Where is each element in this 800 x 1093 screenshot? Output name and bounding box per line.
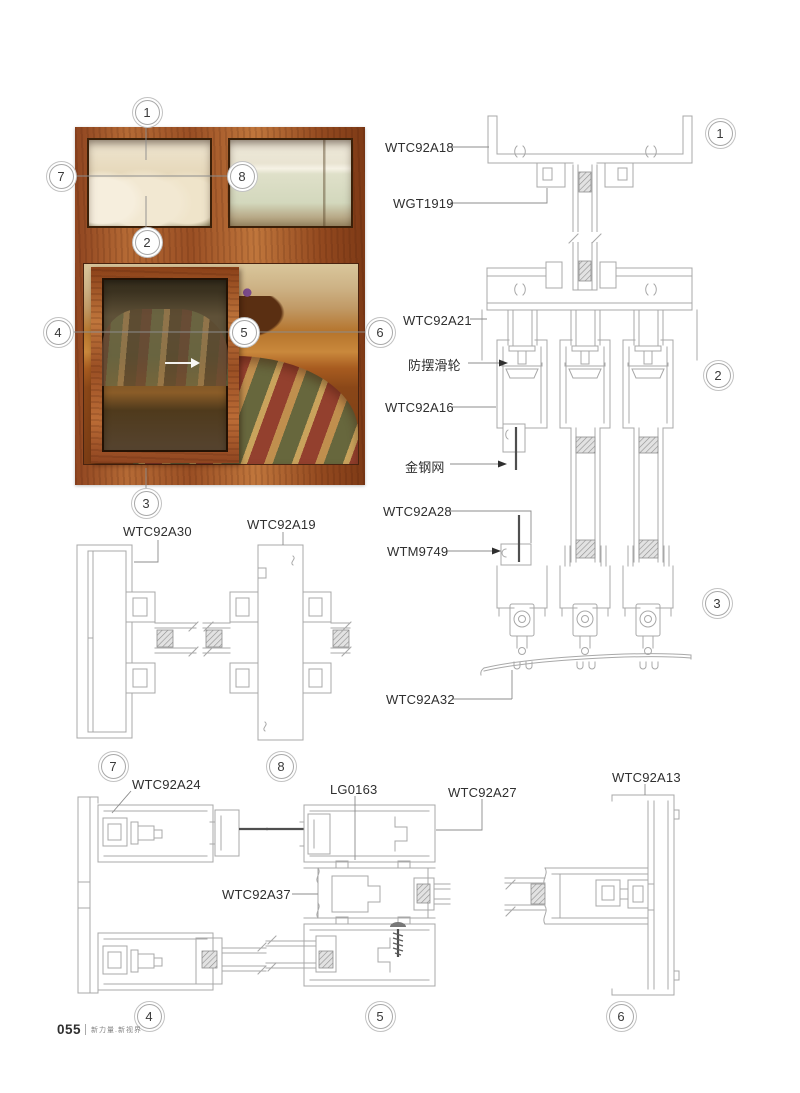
label-wtc92a21: WTC92A21 (403, 313, 472, 328)
callout-7-photo: 7 (49, 164, 74, 189)
photo-callout-lines (70, 124, 368, 491)
section-8-drawing (203, 545, 351, 740)
section-marker-5: 5 (368, 1004, 393, 1029)
section-2-drawing (482, 262, 697, 566)
label-wtc92a32: WTC92A32 (386, 692, 455, 707)
section-marker-2: 2 (706, 363, 731, 388)
label-lg0163: LG0163 (330, 782, 377, 797)
label-wtm9749: WTM9749 (387, 544, 448, 559)
section-6-drawing (505, 795, 679, 995)
callout-8-photo: 8 (230, 164, 255, 189)
footer-divider (85, 1024, 86, 1035)
callout-4-photo: 4 (46, 320, 71, 345)
label-wtc92a16: WTC92A16 (385, 400, 454, 415)
section-marker-7: 7 (101, 754, 126, 779)
callout-1-photo: 1 (135, 100, 160, 125)
page-number: 055 (57, 1022, 81, 1037)
section-marker-8: 8 (269, 754, 294, 779)
section-5-drawing (266, 805, 450, 986)
label-wtc92a28: WTC92A28 (383, 504, 452, 519)
section-marker-3: 3 (705, 591, 730, 616)
page-footer: 055 新力量.新视界 (57, 1022, 142, 1037)
label-wtc92a27: WTC92A27 (448, 785, 517, 800)
catalog-page: WTC92A18 WGT1919 WTC92A21 防摆滑轮 WTC92A16 … (0, 0, 800, 1093)
label-wtc92a24: WTC92A24 (132, 777, 201, 792)
label-wtc92a30: WTC92A30 (123, 524, 192, 539)
label-steel-mesh: 金钢网 (405, 457, 445, 476)
section-marker-1: 1 (708, 121, 733, 146)
label-wtc92a19: WTC92A19 (247, 517, 316, 532)
callout-2-photo: 2 (135, 230, 160, 255)
label-wtc92a18: WTC92A18 (385, 140, 454, 155)
section-marker-6: 6 (609, 1004, 634, 1029)
callout-5-photo: 5 (232, 320, 257, 345)
label-wtc92a37: WTC92A37 (222, 887, 291, 902)
label-wgt1919: WGT1919 (393, 196, 454, 211)
screw-icon (390, 922, 406, 957)
section-7-drawing (77, 545, 198, 738)
section-3-drawing (481, 515, 691, 675)
callout-3-photo: 3 (134, 491, 159, 516)
callout-6-photo: 6 (368, 320, 393, 345)
label-anti-sway-roller: 防摆滑轮 (408, 355, 461, 374)
label-wtc92a13: WTC92A13 (612, 770, 681, 785)
page-slogan: 新力量.新视界 (91, 1025, 142, 1035)
